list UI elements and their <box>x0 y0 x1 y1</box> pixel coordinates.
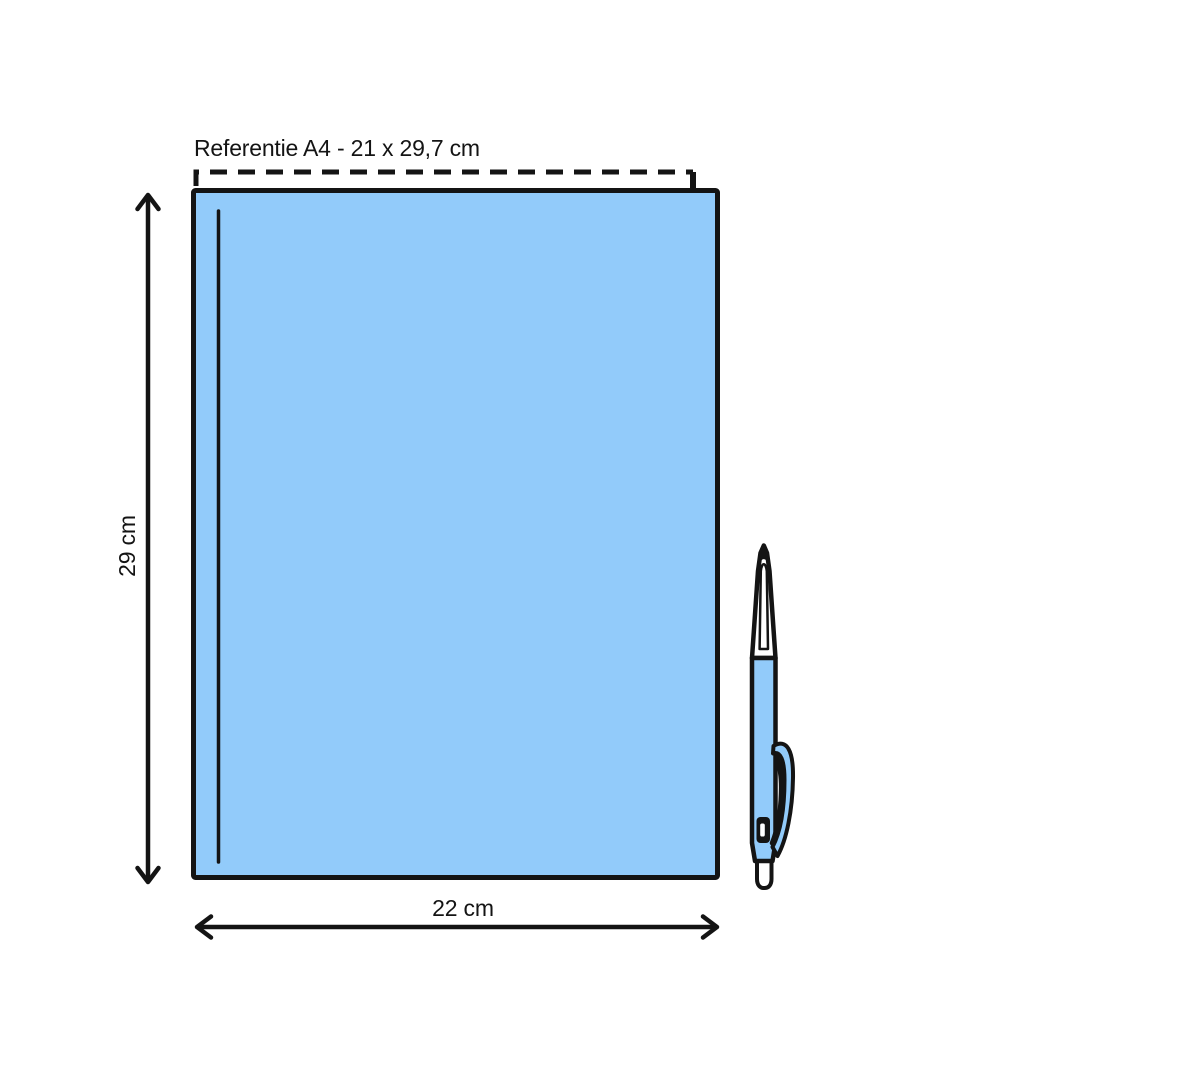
pen-slot-highlight <box>760 824 765 837</box>
height-dimension-label: 29 cm <box>114 515 140 577</box>
pen-ink-cartridge <box>760 564 768 649</box>
pen-push-button <box>757 860 772 888</box>
size-comparison-diagram: Referentie A4 - 21 x 29,7 cm 29 cm 22 cm <box>0 0 1200 1066</box>
height-dimension-arrow <box>138 195 159 882</box>
a4-outline-top-dashed-line <box>196 172 693 186</box>
width-dimension-label: 22 cm <box>432 895 494 921</box>
diagram-svg: Referentie A4 - 21 x 29,7 cm 29 cm 22 cm <box>0 0 1200 1066</box>
pen-icon <box>752 545 793 889</box>
notebook-cover <box>194 191 718 878</box>
notebook-cover-rect <box>194 191 718 878</box>
reference-title: Referentie A4 - 21 x 29,7 cm <box>194 135 480 161</box>
